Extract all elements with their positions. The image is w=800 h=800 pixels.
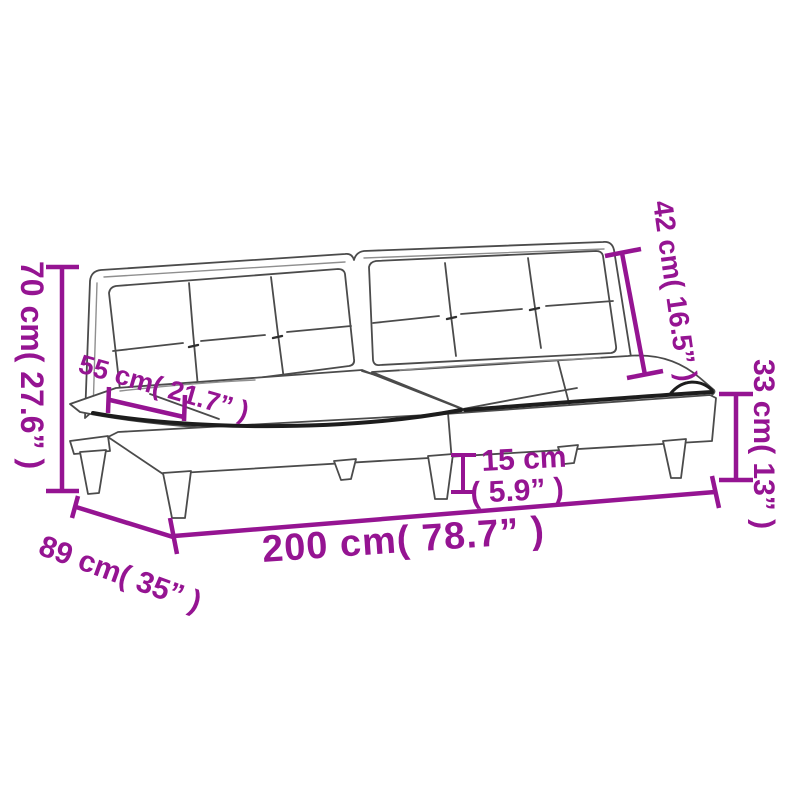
height-label: 70 cm( 27.6” ) — [14, 261, 50, 469]
backrest-height-label: 42 cm( 16.5” ) — [647, 199, 703, 384]
dimension-diagram: 70 cm( 27.6” ) 55 cm( 21.7” ) 42 cm( 16.… — [0, 0, 800, 800]
leg-height-in-label: ( 5.9” ) — [470, 472, 565, 510]
dimension-line-depth-89cm — [72, 496, 173, 537]
depth-label: 89 cm( 35” ) — [35, 530, 206, 619]
sofa-dimension-drawing: 70 cm( 27.6” ) 55 cm( 21.7” ) 42 cm( 16.… — [0, 0, 800, 800]
width-label: 200 cm( 78.7” ) — [261, 509, 547, 571]
seat-height-label: 33 cm( 13” ) — [747, 359, 780, 529]
